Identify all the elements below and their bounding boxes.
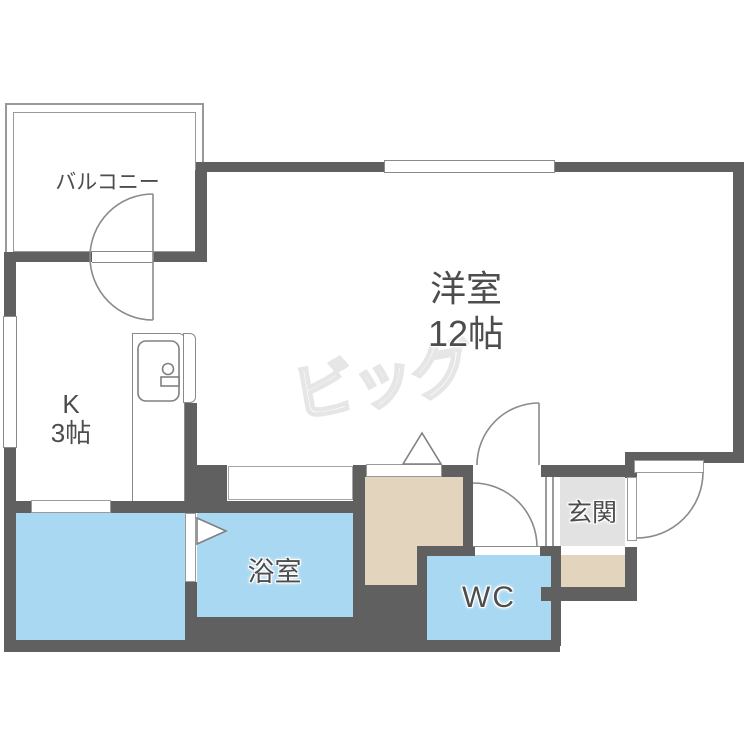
kitchen-label: K 3帖: [21, 390, 121, 448]
main-room-size: 12帖: [366, 311, 566, 356]
doorway-opening: [366, 464, 442, 477]
wc-label: WC: [428, 581, 550, 615]
window: [3, 316, 17, 448]
entrance-frame-line: [545, 477, 547, 546]
wall: [540, 465, 637, 477]
wall: [463, 477, 473, 547]
entrance-frame-line: [552, 477, 554, 546]
wall: [195, 465, 227, 502]
kitchen-size: 3帖: [21, 419, 121, 448]
hallway-area: [365, 475, 463, 547]
kitchen-counter: [132, 333, 185, 503]
wall: [4, 252, 92, 262]
doorway-opening: [31, 500, 111, 513]
main-room-name: 洋室: [366, 266, 566, 311]
wall: [153, 252, 207, 262]
wall: [441, 465, 473, 477]
entrance-door-leaf: [627, 477, 637, 541]
main-room-label: 洋室 12帖: [366, 266, 566, 356]
folding-door-leaf: [185, 513, 196, 582]
entrance-step-area: [560, 555, 625, 587]
floorplan: ビッグ バルコニー 洋室 12帖 K 3帖 浴室 WC 玄関: [0, 0, 750, 750]
hall-door-triangle-icon: [403, 433, 441, 464]
wall: [733, 162, 744, 462]
wall: [541, 587, 637, 601]
entrance-threshold: [634, 460, 704, 473]
doorway-opening: [473, 464, 541, 478]
vestibule: [473, 477, 541, 547]
entrance-label: 玄関: [557, 493, 627, 529]
entrance-door-arc-icon: [637, 472, 703, 538]
kitchen-name: K: [21, 390, 121, 419]
wall: [185, 501, 365, 513]
wall: [4, 640, 560, 652]
kitchen-counter-side: [183, 333, 196, 403]
wall: [195, 170, 207, 262]
wall: [427, 546, 475, 556]
wall: [625, 547, 637, 601]
bathroom-label: 浴室: [212, 550, 337, 589]
washroom-counter: [228, 466, 353, 500]
balcony-label: バルコニー: [40, 166, 175, 196]
balcony-door-opening: [92, 251, 153, 263]
room-door-arc-icon: [477, 403, 539, 465]
wall: [540, 546, 551, 556]
wall: [4, 252, 16, 652]
washroom-area: [16, 512, 186, 641]
window: [384, 160, 555, 173]
wall: [417, 546, 427, 646]
hallway-area-lower: [365, 547, 417, 585]
